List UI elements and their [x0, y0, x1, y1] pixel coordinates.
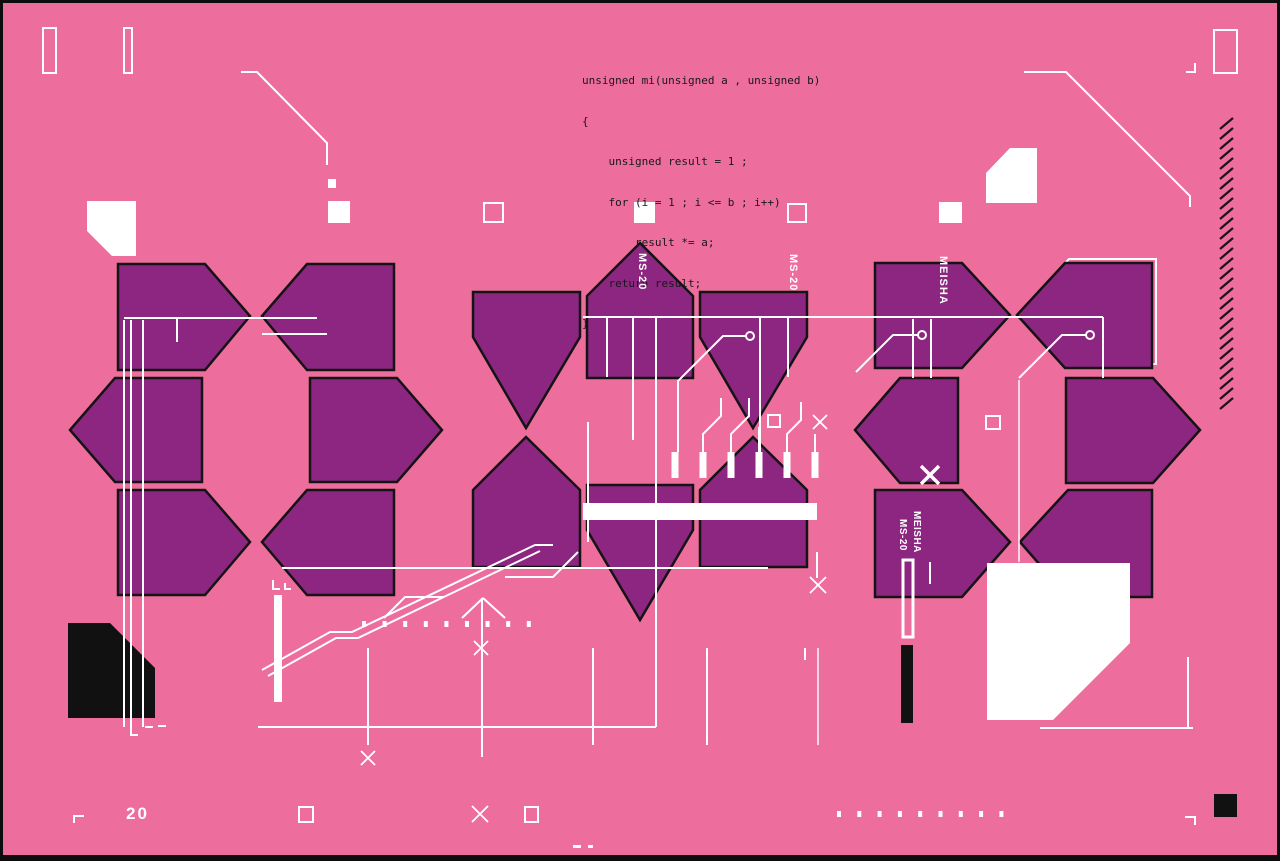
x-mark — [813, 415, 827, 429]
code-line: for (i = 1 ; i <= b ; i++) — [582, 196, 820, 210]
white-blob-top-right — [986, 148, 1037, 203]
frame-edge-left — [0, 0, 3, 861]
hatch-stroke — [1220, 248, 1233, 259]
small-square — [328, 201, 350, 223]
hatch-stroke — [1220, 298, 1233, 309]
outline-rect — [299, 807, 313, 822]
pentagon — [70, 378, 202, 482]
connector-pin — [784, 452, 791, 478]
pentagon — [262, 490, 394, 595]
outline-rect — [484, 203, 503, 222]
label-ms20-bottom: MS-20 — [897, 519, 908, 551]
hatch-stroke — [1220, 148, 1233, 159]
outline-rect — [1214, 30, 1237, 73]
hatch-stroke — [1220, 308, 1233, 319]
white-blob-top-left — [87, 201, 136, 256]
hatch-stroke — [1220, 378, 1233, 389]
connector-pin — [700, 452, 707, 478]
dot-dash — [424, 621, 428, 627]
connector-pin — [756, 452, 763, 478]
dot-dash — [486, 621, 490, 627]
code-line: unsigned mi(unsigned a , unsigned b) — [582, 74, 820, 88]
hatch-stroke — [1220, 278, 1233, 289]
x-mark — [810, 577, 826, 593]
pentagon — [1066, 378, 1200, 483]
hatch-stroke — [1220, 398, 1233, 409]
hatch-stroke — [1220, 128, 1233, 139]
hatch-stroke — [1220, 138, 1233, 149]
pentagon — [1017, 263, 1152, 368]
dot-dash — [939, 811, 943, 817]
connector-pin — [812, 452, 819, 478]
outline-rect — [525, 807, 538, 822]
pentagon — [310, 378, 442, 482]
tiny-dash — [573, 845, 581, 848]
black-bar — [901, 645, 913, 723]
dot-dash — [999, 811, 1003, 817]
dot-dash — [918, 811, 922, 817]
label-ms20-top-right: MS-20 — [787, 254, 799, 291]
dot-dash — [506, 621, 510, 627]
dot-dash — [362, 621, 366, 627]
tiny-dash — [588, 845, 593, 848]
black-blob — [68, 623, 155, 718]
black-square — [1214, 794, 1237, 817]
dot-dash — [857, 811, 861, 817]
hatch-stroke — [1220, 258, 1233, 269]
dot-dash — [878, 811, 882, 817]
code-line: return result; — [582, 277, 820, 291]
hatch-stroke — [1220, 338, 1233, 349]
connector-pin — [672, 452, 679, 478]
outline-rect — [986, 416, 1000, 429]
small-square — [939, 202, 962, 223]
white-blob-bottom-right — [987, 563, 1130, 720]
hatch-stroke — [1220, 198, 1233, 209]
hatch-stroke — [1220, 178, 1233, 189]
dot-dash — [403, 621, 407, 627]
x-mark — [361, 751, 375, 765]
hatch-stroke — [1220, 358, 1233, 369]
hatch-stroke — [1220, 388, 1233, 399]
pentagon — [118, 490, 250, 595]
hatch-stroke — [1220, 368, 1233, 379]
connector-pin — [728, 452, 735, 478]
label-meisha-bottom: MEISHA — [911, 511, 922, 553]
x-mark — [472, 806, 488, 822]
poster-canvas: unsigned mi(unsigned a , unsigned b) { u… — [0, 0, 1280, 861]
pentagon — [855, 378, 958, 483]
hatch-stroke — [1220, 348, 1233, 359]
hatch-stroke — [1220, 158, 1233, 169]
outline-rect — [768, 415, 780, 427]
dot-dash — [979, 811, 983, 817]
dot-dash — [465, 621, 469, 627]
label-meisha-top: MEISHA — [937, 256, 949, 305]
hatch-stroke — [1220, 228, 1233, 239]
code-line: } — [582, 317, 820, 331]
pentagon — [700, 437, 807, 567]
code-line: result *= a; — [582, 236, 820, 250]
hatch-stroke — [1220, 168, 1233, 179]
code-line: { — [582, 115, 820, 129]
code-line: unsigned result = 1 ; — [582, 155, 820, 169]
dot-dash — [383, 621, 387, 627]
hatch-stroke — [1220, 188, 1233, 199]
hatch-stroke — [1220, 208, 1233, 219]
frame-edge-bottom — [0, 855, 1280, 861]
label-ms20-top-center: MS-20 — [636, 253, 648, 290]
small-square — [328, 179, 336, 188]
dot-dash — [444, 621, 448, 627]
hatch-stroke — [1220, 218, 1233, 229]
big-white-bar — [583, 503, 817, 520]
dot-dash — [837, 811, 841, 817]
thick-white-bar — [274, 595, 282, 702]
pentagon — [473, 292, 580, 428]
hatch-stroke — [1220, 318, 1233, 329]
dot-dash — [898, 811, 902, 817]
hatch-stroke — [1220, 328, 1233, 339]
frame-edge-top — [0, 0, 1280, 3]
hatch-stroke — [1220, 268, 1233, 279]
outline-rect — [43, 28, 56, 73]
pentagon — [473, 437, 580, 567]
hatch-stroke — [1220, 238, 1233, 249]
hatch-stroke — [1220, 118, 1233, 129]
dot-dash — [527, 621, 531, 627]
dot-dash — [959, 811, 963, 817]
outline-rect — [124, 28, 132, 73]
code-snippet: unsigned mi(unsigned a , unsigned b) { u… — [582, 47, 820, 358]
page-number: 20 — [126, 804, 149, 824]
pentagon-cluster-left — [70, 264, 442, 595]
hatch-stroke — [1220, 288, 1233, 299]
